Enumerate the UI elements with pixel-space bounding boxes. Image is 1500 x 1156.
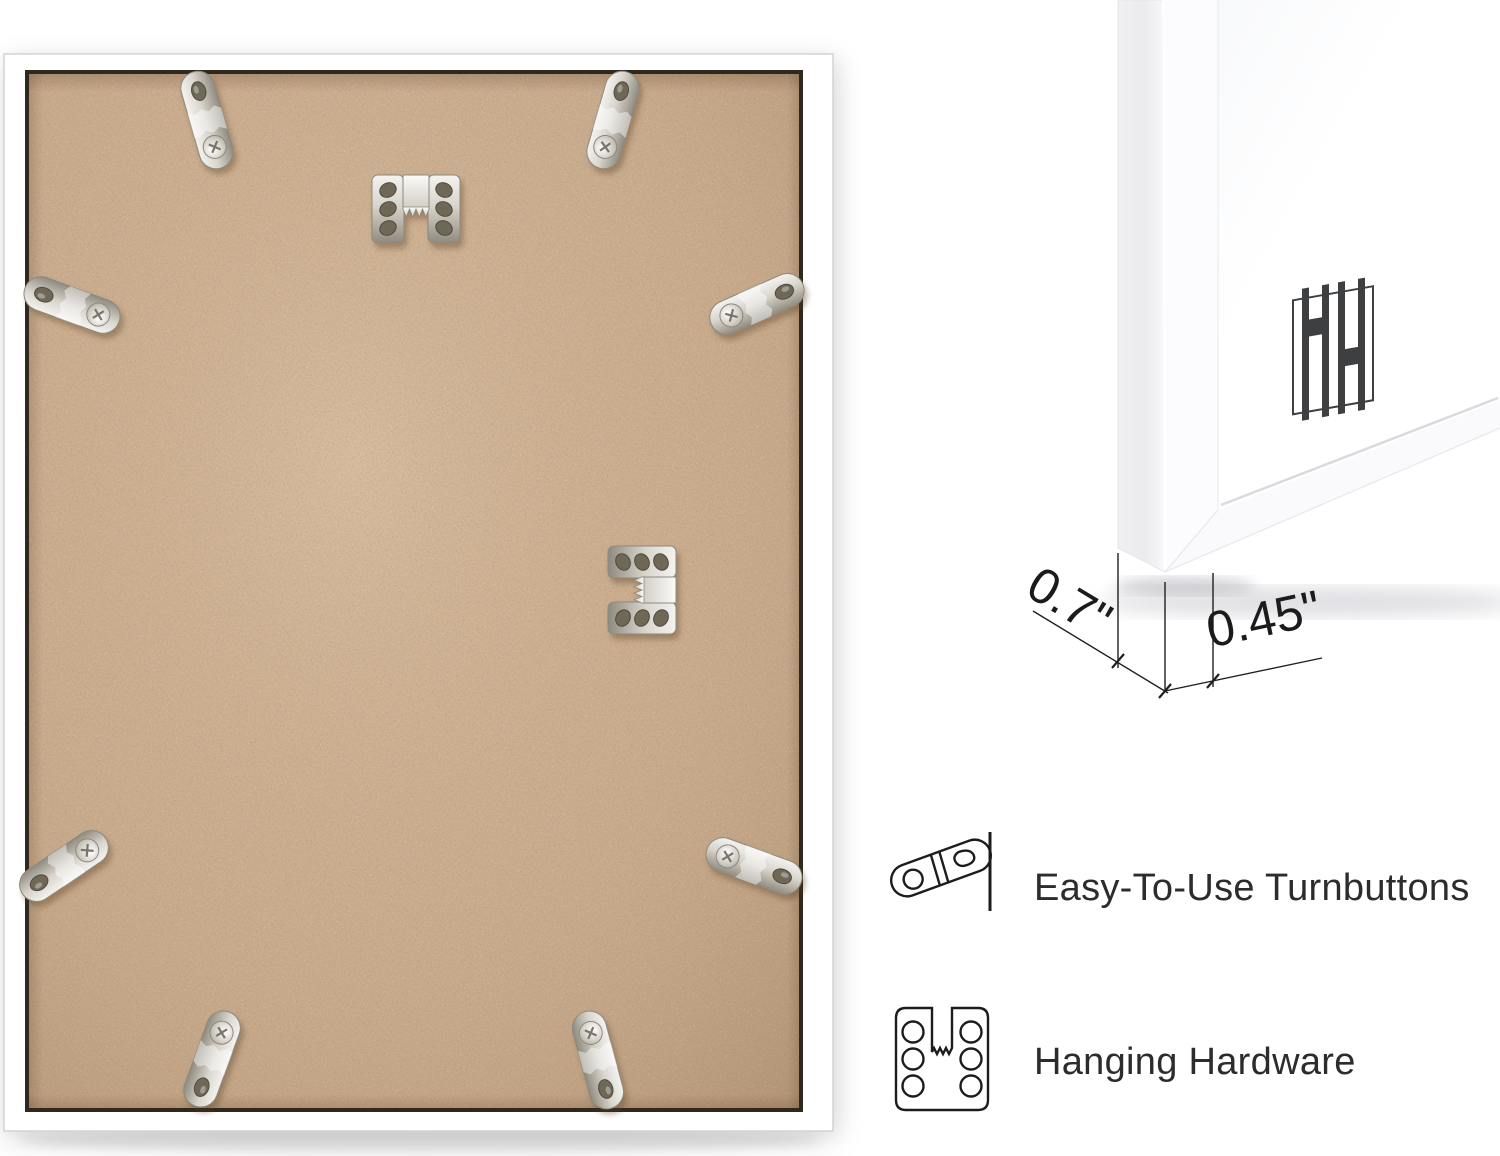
mdf-top-shadow: [29, 74, 799, 92]
mdf-bottom-shadow: [29, 1094, 799, 1108]
mdf-grain-light: [29, 74, 799, 1108]
product-image: 0.7" 0.45" Easy-To-Use Turnbuttons Hangi…: [0, 0, 1500, 1156]
frame-front-face: [1163, 0, 1218, 572]
mdf-right-shadow: [787, 74, 799, 1108]
frame-corner-closeup: [1100, 0, 1500, 617]
closeup-corner-shadow: [1115, 577, 1255, 595]
dimension-line-face: [1165, 658, 1322, 691]
feature-label-turnbuttons: Easy-To-Use Turnbuttons: [1034, 867, 1470, 911]
feature-label-hanging: Hanging Hardware: [1034, 1041, 1356, 1085]
mdf-left-shadow: [29, 74, 43, 1108]
turnbutton-icon: [887, 832, 996, 911]
sawtooth-hanger-icon: [896, 1008, 988, 1110]
frame-back-photo: [4, 54, 833, 1153]
frame-side-face: [1118, 0, 1165, 572]
product-graphics: [0, 0, 1500, 1156]
